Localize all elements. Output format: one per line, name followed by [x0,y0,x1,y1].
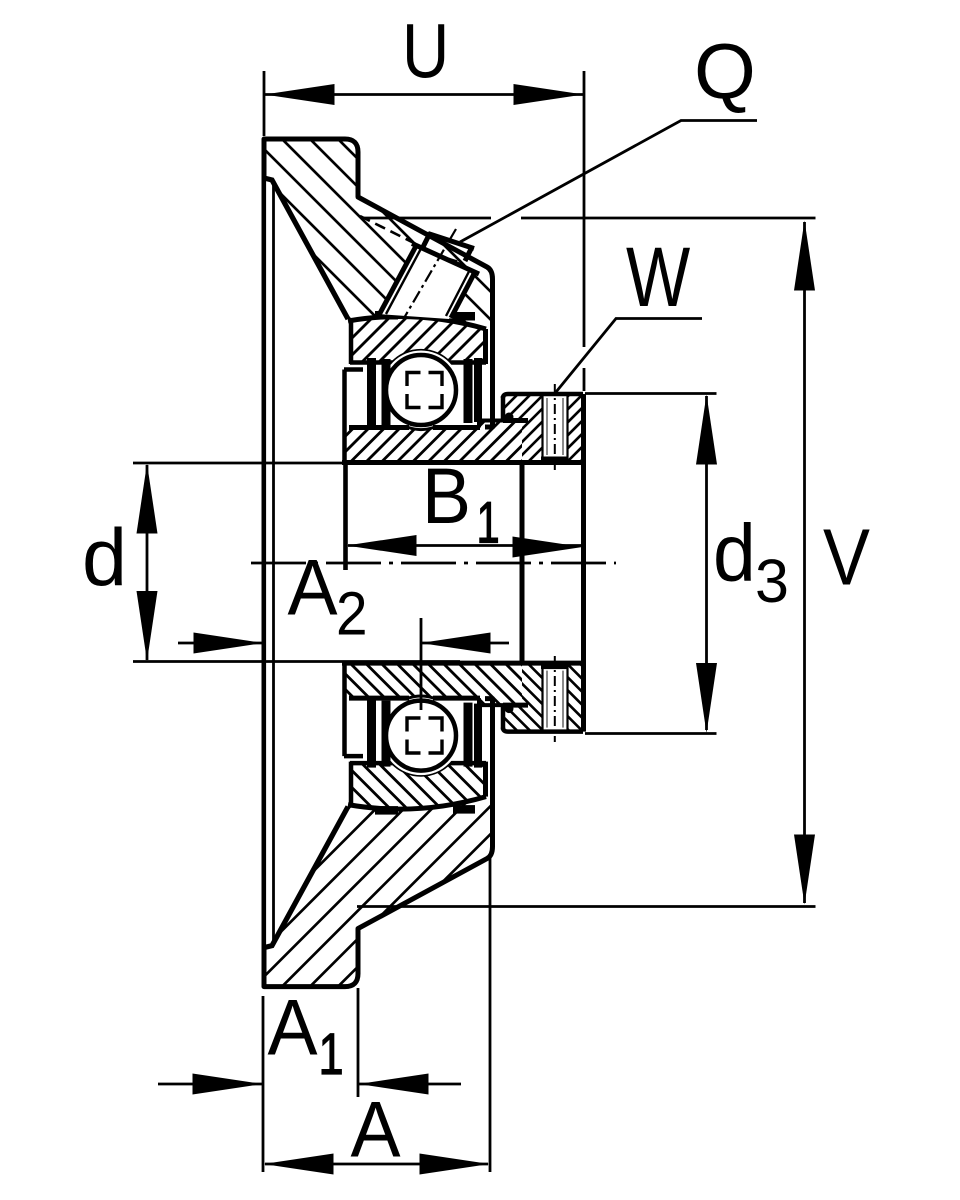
svg-text:d: d [82,513,127,603]
svg-text:W: W [626,231,690,324]
svg-text:U: U [402,9,449,95]
svg-text:V: V [823,512,870,601]
svg-text:A: A [288,544,339,632]
svg-text:A: A [351,1086,402,1174]
svg-text:d: d [713,507,756,598]
svg-text:3: 3 [755,547,789,615]
svg-text:1: 1 [319,1023,344,1088]
svg-text:1: 1 [477,490,500,555]
svg-text:A: A [268,984,319,1072]
svg-text:2: 2 [336,581,368,648]
svg-text:Q: Q [694,28,756,115]
svg-text:B: B [422,453,471,541]
